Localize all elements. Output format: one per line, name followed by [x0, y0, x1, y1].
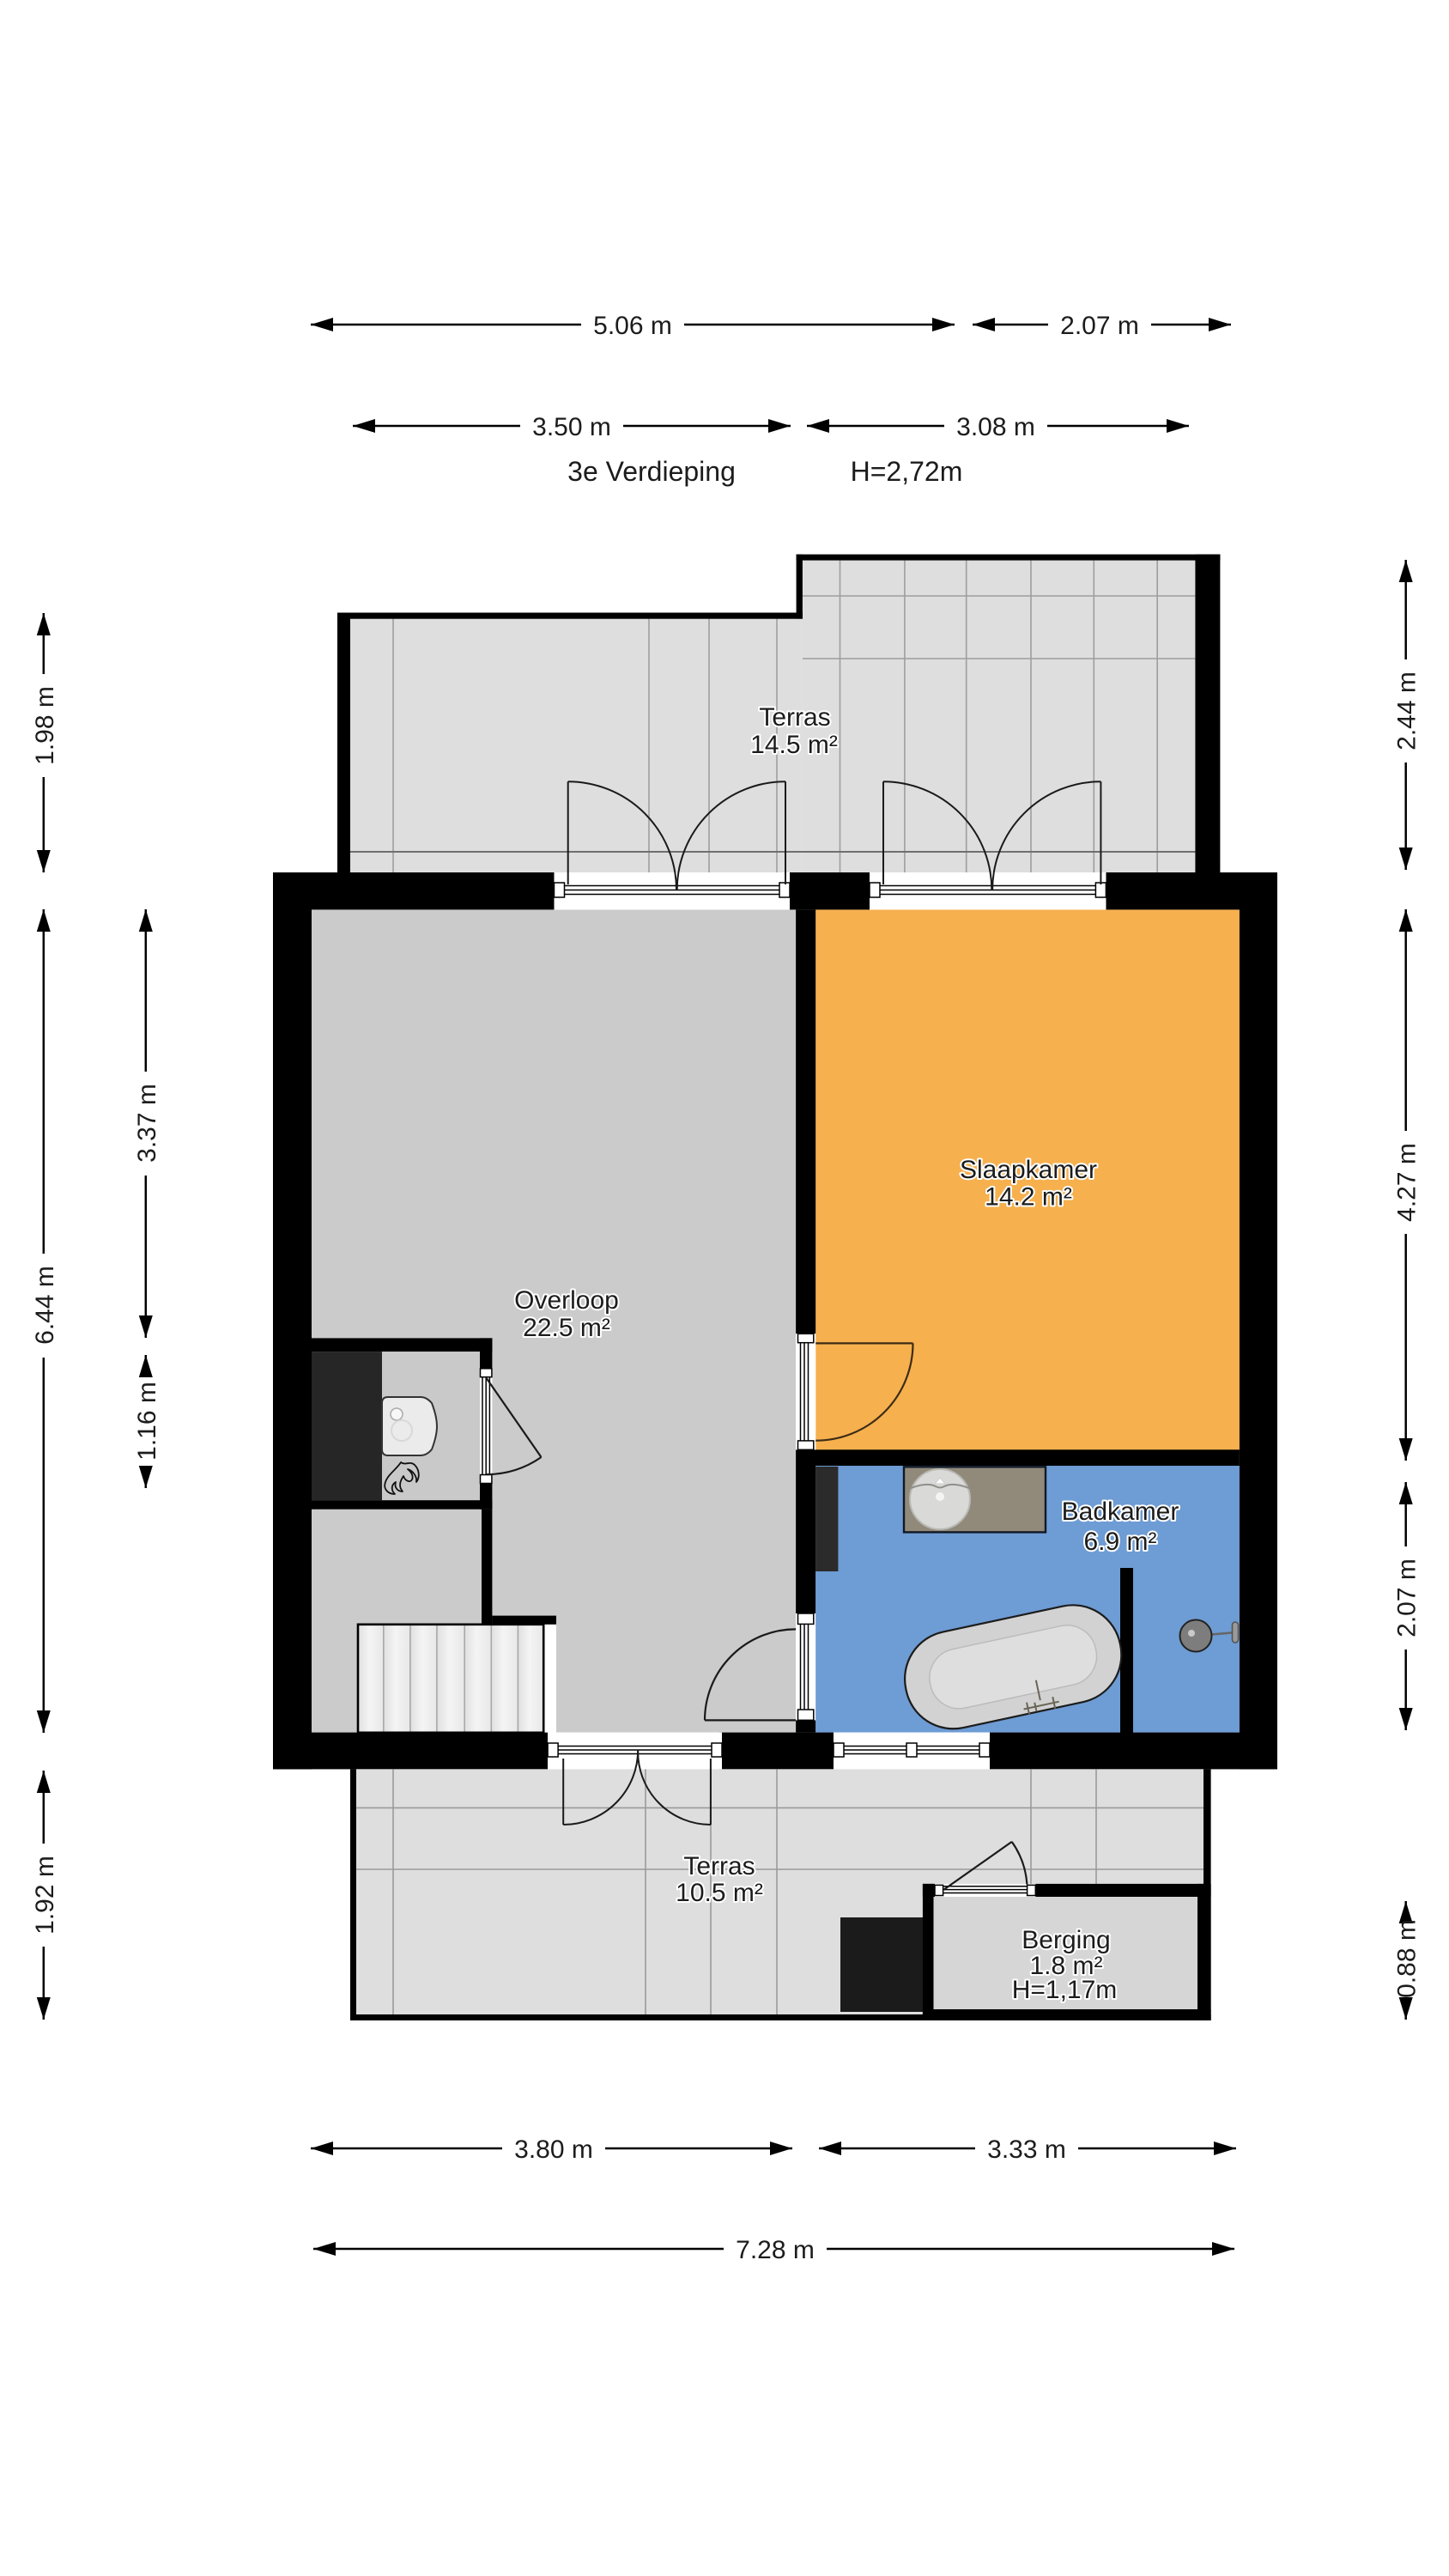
svg-text:1.16 m: 1.16 m	[133, 1382, 161, 1461]
svg-text:0.88 m: 0.88 m	[1393, 1919, 1422, 1998]
svg-text:3.80 m: 3.80 m	[514, 2136, 593, 2164]
svg-text:2.44 m: 2.44 m	[1393, 671, 1422, 750]
svg-text:6.9 m²: 6.9 m²	[1083, 1528, 1156, 1556]
svg-text:Badkamer: Badkamer	[1062, 1498, 1179, 1526]
svg-text:2.07 m: 2.07 m	[1060, 312, 1139, 340]
svg-text:5.06 m: 5.06 m	[593, 312, 672, 340]
svg-text:H=2,72m: H=2,72m	[851, 456, 963, 487]
svg-text:2.07 m: 2.07 m	[1393, 1558, 1422, 1637]
svg-text:7.28 m: 7.28 m	[736, 2236, 815, 2264]
svg-text:14.2 m²: 14.2 m²	[985, 1183, 1072, 1212]
svg-text:3.50 m: 3.50 m	[532, 413, 611, 441]
svg-text:1.92 m: 1.92 m	[31, 1856, 59, 1935]
svg-text:Terras: Terras	[759, 703, 830, 732]
svg-text:Berging: Berging	[1022, 1926, 1110, 1954]
svg-text:H=1,17m: H=1,17m	[1012, 1976, 1118, 2004]
svg-text:4.27 m: 4.27 m	[1393, 1143, 1422, 1222]
svg-text:1.98 m: 1.98 m	[31, 686, 59, 765]
svg-text:22.5 m²: 22.5 m²	[523, 1314, 610, 1342]
svg-text:3e Verdieping: 3e Verdieping	[567, 456, 736, 487]
svg-text:14.5 m²: 14.5 m²	[750, 731, 838, 759]
svg-text:10.5 m²: 10.5 m²	[676, 1879, 763, 1907]
svg-text:3.08 m: 3.08 m	[956, 413, 1035, 441]
svg-text:3.37 m: 3.37 m	[133, 1084, 161, 1163]
svg-text:Terras: Terras	[683, 1852, 755, 1880]
svg-text:Overloop: Overloop	[514, 1286, 619, 1315]
svg-text:Slaapkamer: Slaapkamer	[960, 1156, 1097, 1184]
svg-text:6.44 m: 6.44 m	[31, 1266, 59, 1345]
svg-text:3.33 m: 3.33 m	[987, 2136, 1066, 2164]
